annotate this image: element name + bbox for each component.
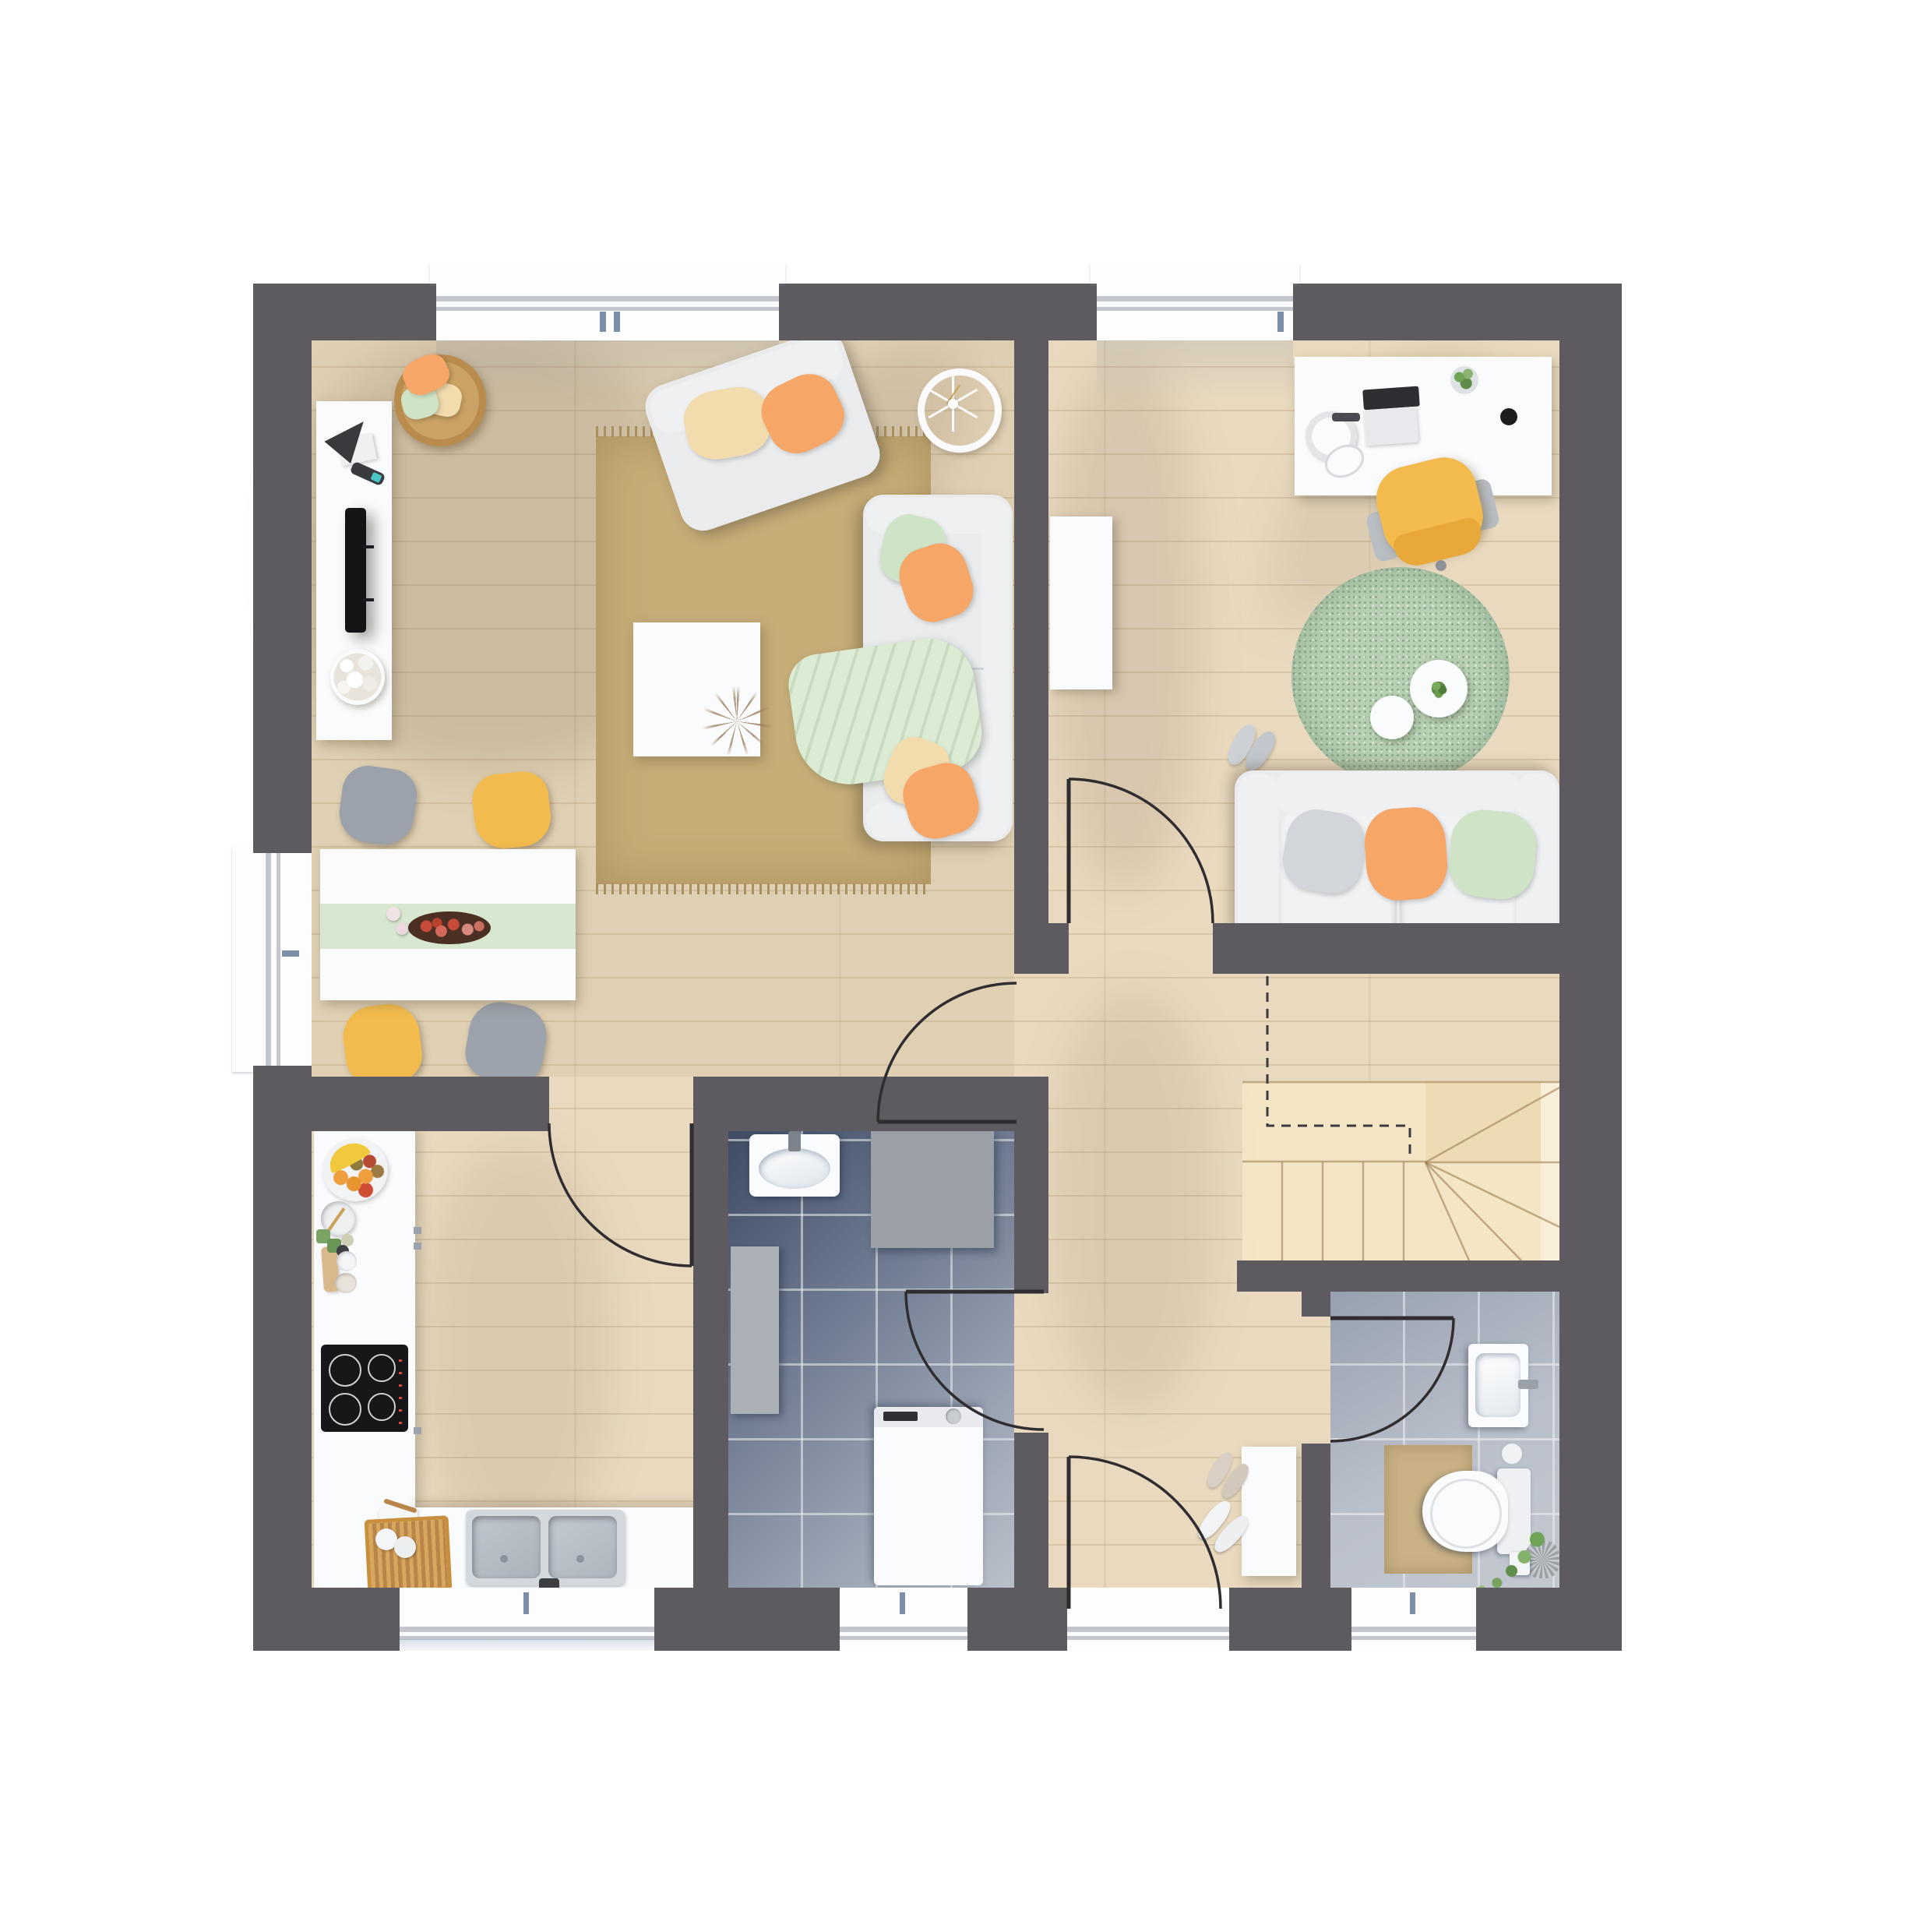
- bathroom-door-arc: [906, 1292, 1044, 1430]
- stair-treads: [1242, 1082, 1559, 1260]
- wc-door-arc: [1330, 1318, 1454, 1441]
- floor-plan: [0, 0, 1931, 1932]
- front-door-arc: [1069, 1457, 1221, 1609]
- kitchen-door-arc: [549, 1123, 692, 1266]
- office-door-arc: [1069, 779, 1213, 923]
- headroom-dashed-line: [1267, 976, 1410, 1159]
- plan-linework: [0, 0, 1931, 1932]
- living-door-arc: [878, 983, 1017, 1122]
